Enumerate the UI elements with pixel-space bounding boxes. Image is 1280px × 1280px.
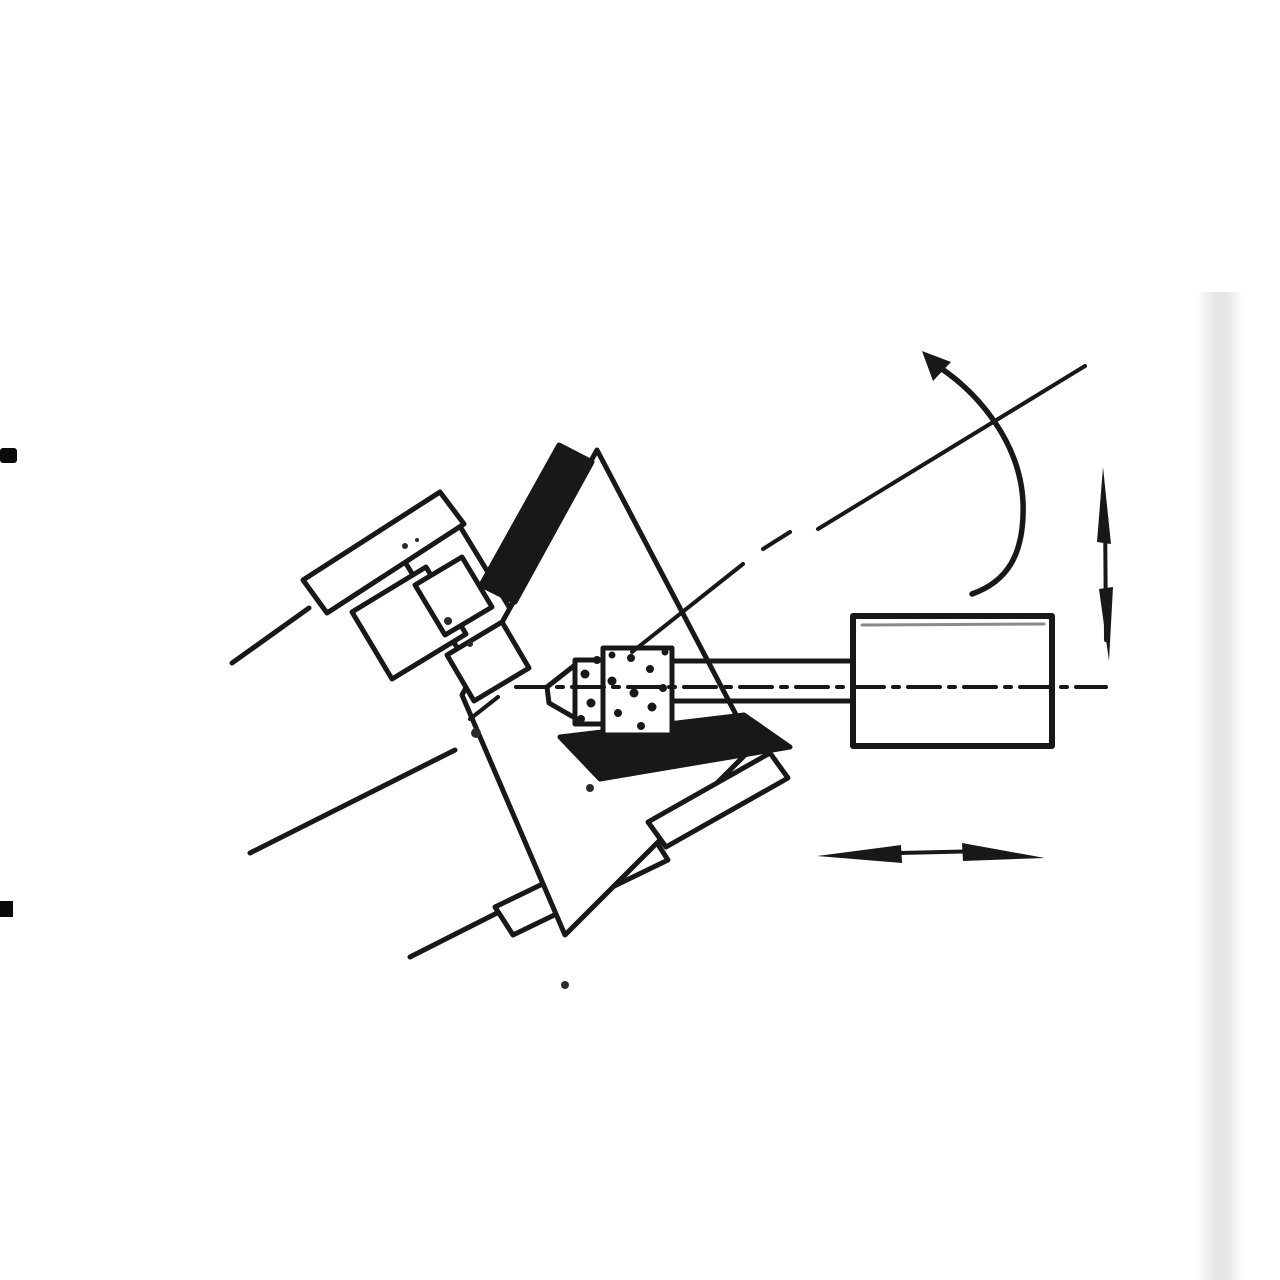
wheel-step — [575, 660, 603, 724]
infeed-arrowhead-down-icon — [1099, 587, 1113, 661]
traverse-arrowhead-right-icon — [962, 843, 1045, 861]
rotation-arrow — [922, 351, 1023, 594]
infeed-arrow — [1097, 467, 1113, 661]
infeed-arrowhead-up-icon — [1097, 467, 1111, 544]
spindle-line-middle — [250, 750, 455, 853]
axis-dash-3 — [818, 366, 1085, 529]
rotation-arrowhead-icon — [922, 351, 951, 381]
scanned-diagram-page — [0, 0, 1280, 1280]
margin-mark-top — [0, 448, 17, 463]
rotation-arrow-curve — [936, 365, 1023, 594]
traverse-arrowhead-left-icon — [817, 845, 902, 863]
wheelhead — [853, 616, 1052, 746]
diagram-canvas — [0, 0, 1280, 1280]
page-edge-band — [1196, 292, 1244, 1280]
traverse-arrow — [817, 843, 1045, 863]
spindle-line-lower — [410, 913, 497, 957]
wheelhead-inner-edge — [862, 624, 1044, 625]
margin-mark-bottom — [0, 901, 13, 917]
spindle-line-upper — [232, 608, 309, 663]
axis-dash-2 — [763, 532, 790, 549]
wheelhead-box — [853, 616, 1052, 746]
